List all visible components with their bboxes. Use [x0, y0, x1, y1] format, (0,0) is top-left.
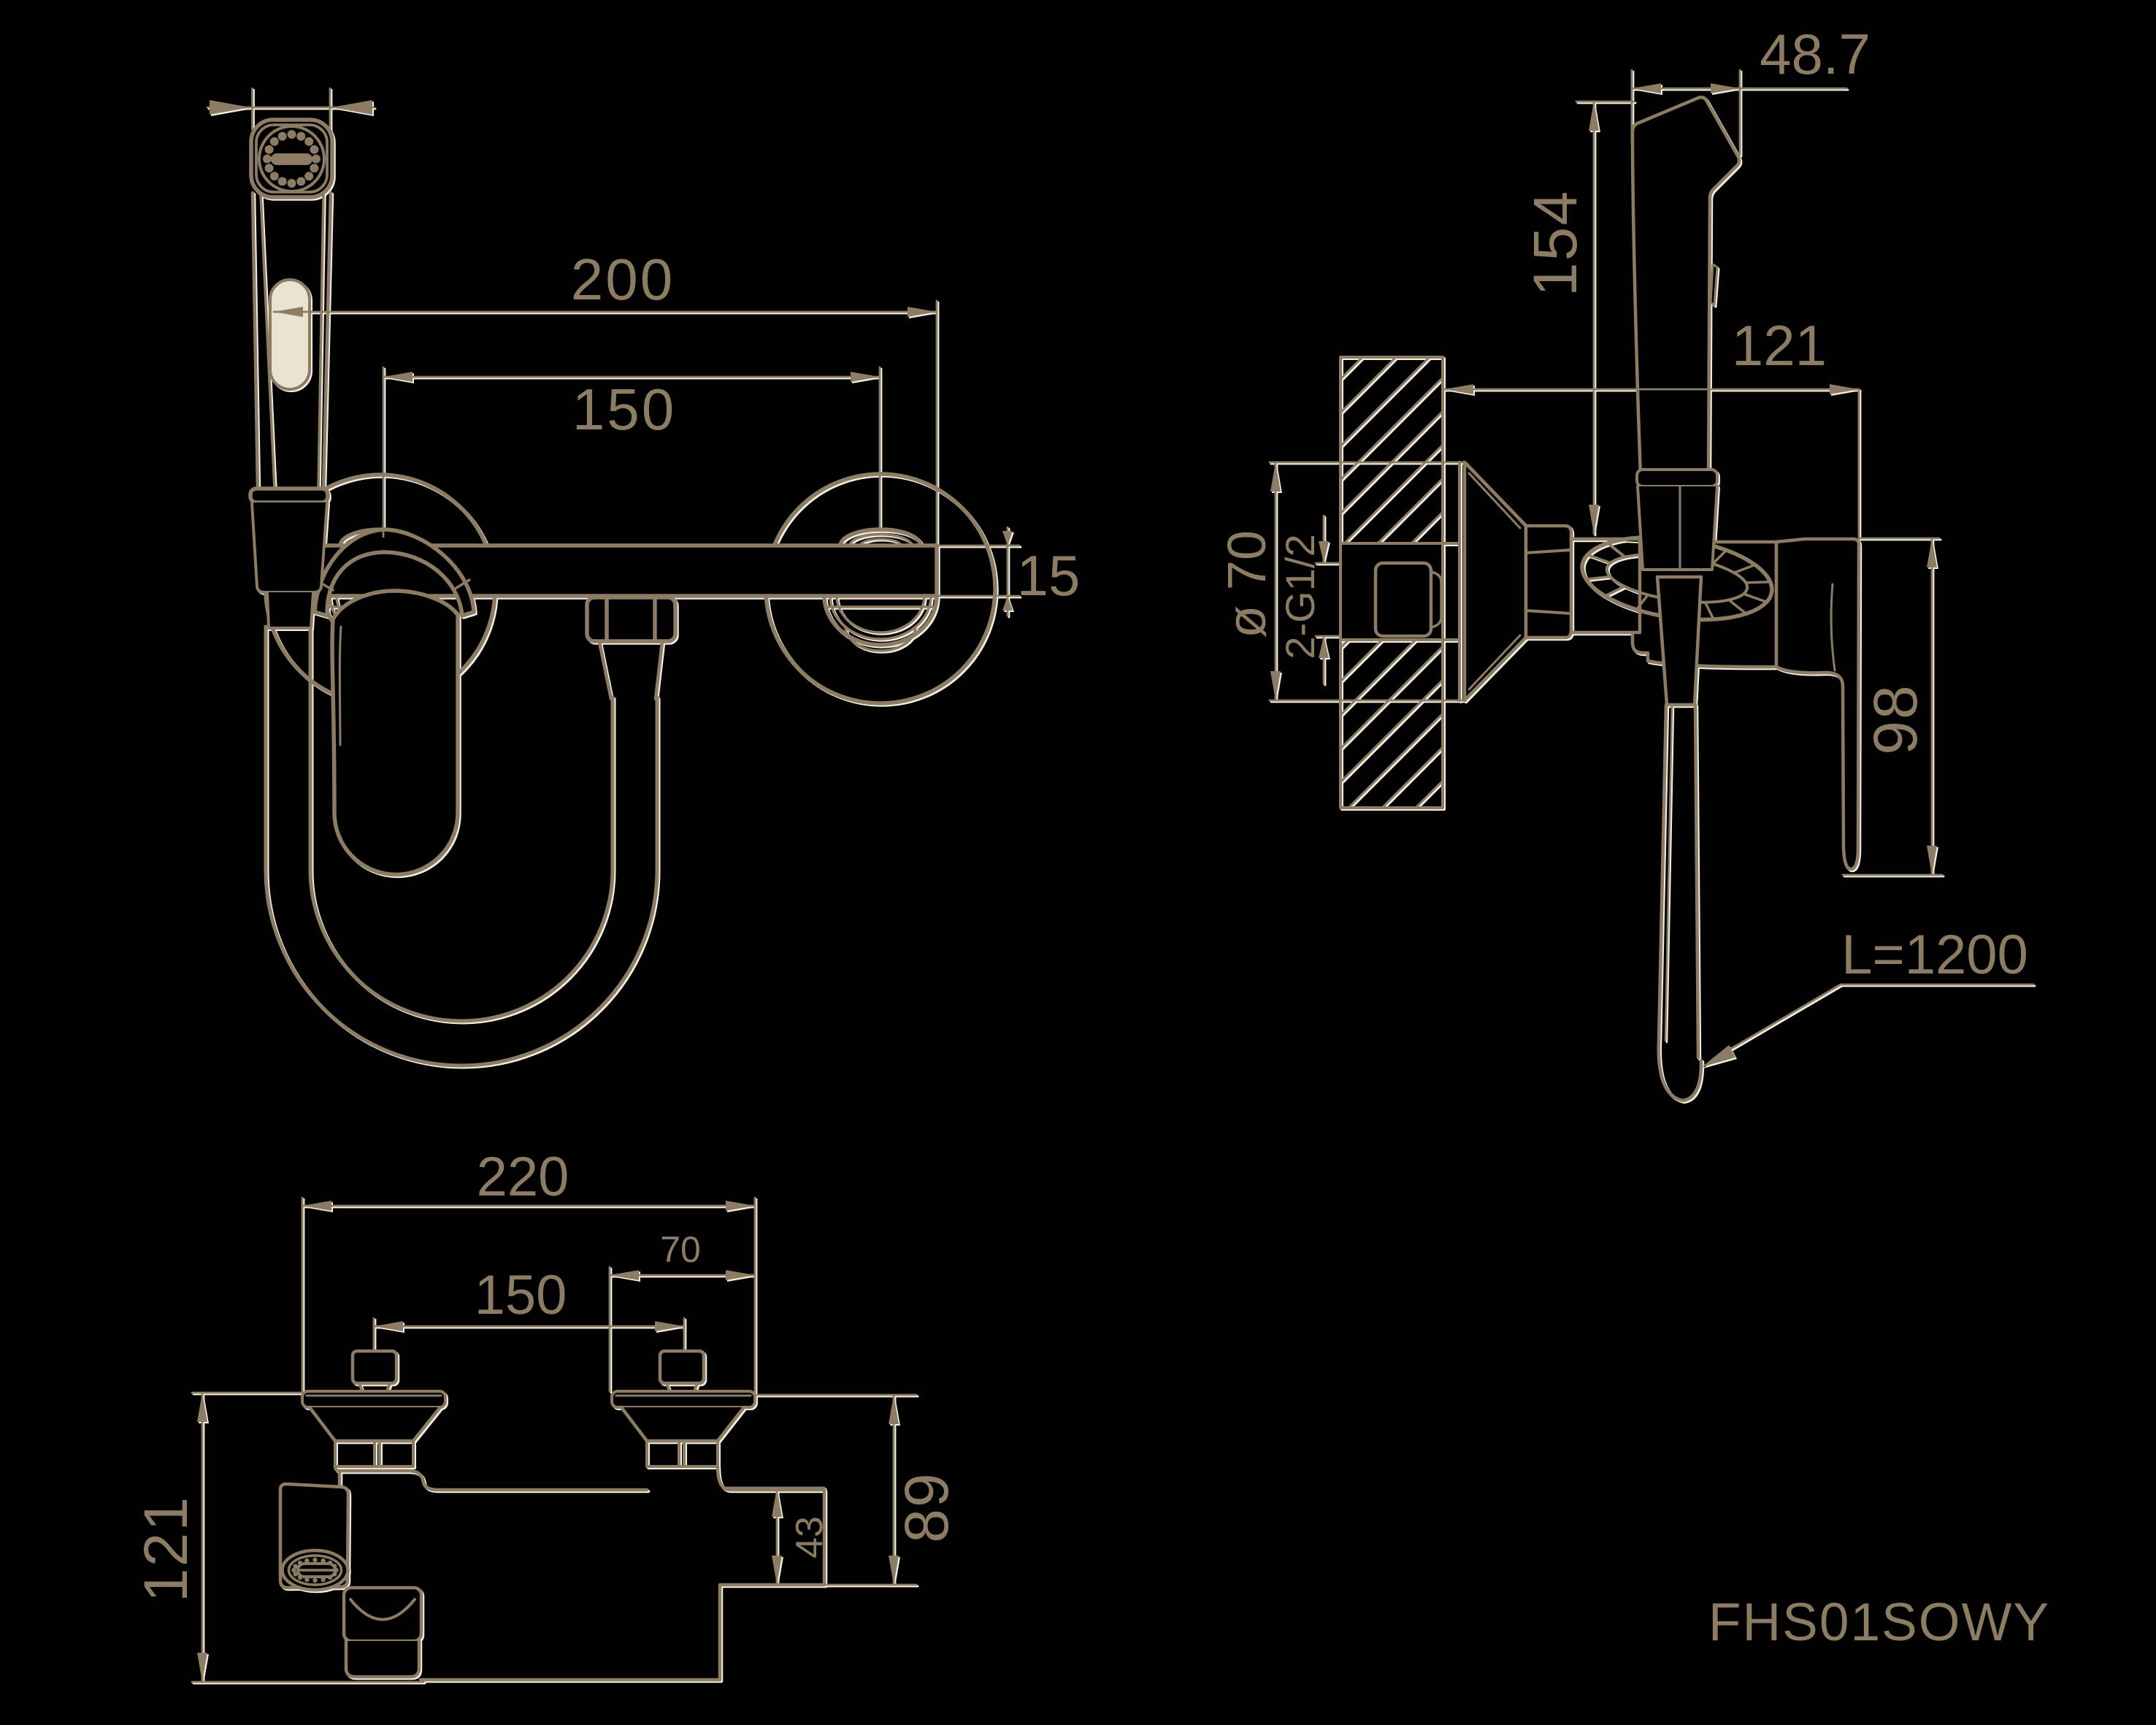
svg-text:48.7: 48.7 — [1760, 22, 1871, 86]
svg-text:98: 98 — [1861, 684, 1930, 754]
svg-text:15: 15 — [1017, 543, 1081, 608]
svg-text:121: 121 — [131, 1496, 200, 1602]
svg-text:ø 70: ø 70 — [1216, 530, 1277, 638]
svg-text:150: 150 — [572, 377, 676, 442]
svg-text:121: 121 — [1732, 313, 1827, 378]
svg-text:150: 150 — [475, 1264, 567, 1326]
svg-text:200: 200 — [571, 247, 675, 312]
svg-text:43: 43 — [789, 1516, 831, 1558]
svg-text:70: 70 — [660, 1229, 701, 1270]
svg-text:2-G1/2: 2-G1/2 — [1277, 534, 1323, 659]
svg-text:89: 89 — [892, 1472, 961, 1542]
svg-text:220: 220 — [477, 1146, 569, 1208]
svg-text:FHS01SOWY: FHS01SOWY — [1708, 1593, 2050, 1652]
svg-text:154: 154 — [1521, 190, 1589, 297]
svg-text:L=1200: L=1200 — [1841, 924, 2028, 986]
